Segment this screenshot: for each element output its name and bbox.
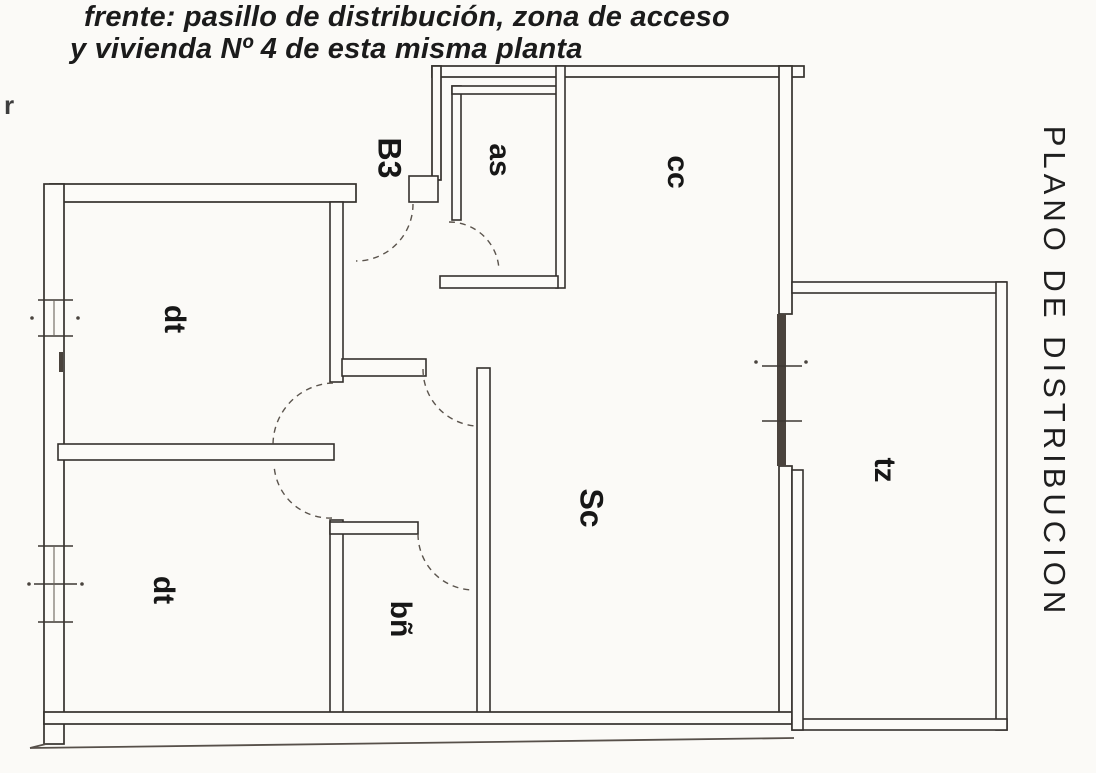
- wall: [330, 202, 343, 382]
- room-label-as: as: [483, 143, 516, 176]
- wall: [792, 719, 1007, 730]
- wall: [330, 520, 343, 718]
- wall: [50, 184, 356, 202]
- wall: [342, 359, 426, 376]
- wall: [779, 466, 792, 718]
- walls-group: [30, 66, 1007, 748]
- door-arc-dt-lower: [274, 464, 332, 518]
- wall: [440, 276, 558, 288]
- room-label-bn: bñ: [384, 601, 417, 638]
- outer-boundary-line: [30, 738, 794, 748]
- room-label-sc: Sc: [574, 488, 610, 527]
- wall: [452, 86, 461, 220]
- wall: [779, 66, 792, 314]
- window-dot: [27, 582, 31, 586]
- wall: [58, 444, 334, 460]
- door-arc-bn: [418, 534, 474, 590]
- window-dot: [80, 582, 84, 586]
- window-dot: [754, 360, 758, 364]
- room-label-b3: B3: [372, 138, 408, 179]
- wall: [44, 184, 64, 744]
- wall: [330, 522, 418, 534]
- wall: [432, 66, 804, 77]
- door-arc-entrance: [356, 204, 413, 261]
- windows-group: [27, 300, 808, 622]
- door-arc-sc: [423, 369, 476, 426]
- plan-title-vertical: PLANO DE DISTRIBUCION: [1037, 126, 1072, 619]
- scanned-floor-plan-page: frente: pasillo de distribución, zona de…: [0, 0, 1096, 773]
- wall: [432, 66, 441, 180]
- window-dot: [804, 360, 808, 364]
- wall: [44, 712, 792, 724]
- window-dot: [76, 316, 80, 320]
- room-label-tz: tz: [868, 458, 901, 483]
- door-arc-dt-upper: [273, 383, 333, 445]
- wall: [792, 470, 803, 730]
- wall-dash-mark: [59, 352, 63, 372]
- wall: [452, 86, 564, 94]
- window-dot: [30, 316, 34, 320]
- terrace-glass-door: [777, 314, 786, 466]
- door-arc-as: [449, 222, 499, 270]
- wall: [996, 282, 1007, 730]
- floor-plan-svg: B3 as cc dt dt Sc bñ tz PLANO DE DISTRIB…: [0, 0, 1096, 773]
- room-label-cc: cc: [661, 155, 694, 188]
- room-label-dt-upper: dt: [158, 305, 191, 333]
- wall: [409, 176, 438, 202]
- wall: [477, 368, 490, 718]
- wall: [556, 66, 565, 288]
- room-label-dt-lower: dt: [147, 576, 180, 604]
- wall: [792, 282, 1006, 293]
